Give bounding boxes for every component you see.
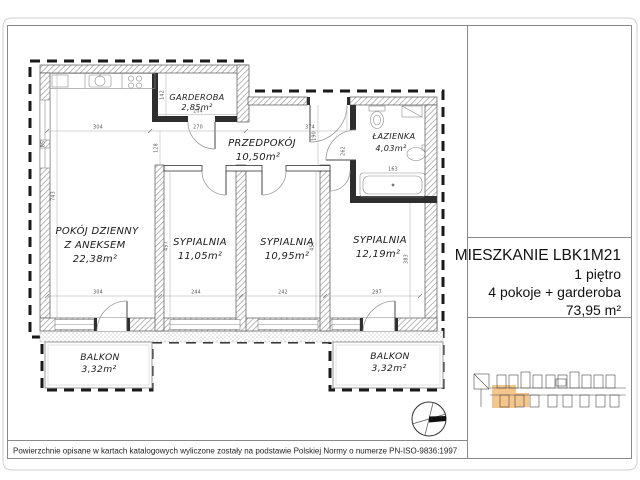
bedroom1-door — [202, 171, 226, 195]
room-label-balkon-right: BALKON 3,32m² — [370, 351, 409, 374]
room-label-balkon-left: BALKON 3,32m² — [80, 352, 119, 375]
partition-walls — [94, 73, 437, 331]
dim-syp3-w: 297 — [372, 290, 382, 296]
svg-text:BALKON: BALKON — [80, 352, 119, 363]
room-label-sypialnia-1: SYPIALNIA 11,05m² — [173, 237, 227, 262]
room-label-sypialnia-3: SYPIALNIA 12,19m² — [353, 235, 407, 260]
dim-bath-h: 262 — [341, 146, 347, 156]
bedroom3-door — [330, 171, 350, 191]
dim-passage: 128 — [154, 143, 160, 153]
dim-garderoba-h: 142 — [160, 90, 166, 100]
dim-left-wall: 743 — [51, 191, 57, 201]
svg-text:SYPIALNIA: SYPIALNIA — [260, 237, 314, 248]
svg-text:BALKON: BALKON — [370, 351, 409, 362]
dim-syp1-w: 244 — [191, 290, 201, 296]
dim-hall-h: 190 — [312, 131, 318, 141]
room-label-garderoba: GARDEROBA 2,85m² — [169, 92, 224, 112]
stove-icon — [128, 76, 141, 88]
dim-left-seg: 85 — [41, 141, 47, 148]
dim-wall-h-1: 457 — [164, 241, 170, 251]
compass-icon — [412, 402, 446, 436]
dim-tub-w: 163 — [388, 167, 398, 173]
svg-text:4,03m²: 4,03m² — [375, 143, 407, 153]
washbasin-icon — [407, 145, 425, 161]
dim-kitchen-w: 304 — [93, 125, 103, 131]
room-label-sypialnia-2: SYPIALNIA 10,95m² — [260, 237, 314, 262]
room-label-przedpokoj: PRZEDPOKÓJ 10,50m² — [228, 136, 296, 163]
svg-text:POKÓJ DZIENNY: POKÓJ DZIENNY — [56, 224, 140, 237]
hall-partition — [164, 166, 330, 172]
dim-hall-w: 374 — [305, 125, 315, 131]
dim-living-w: 304 — [93, 290, 103, 296]
toilet-icon — [369, 106, 385, 129]
svg-text:PRZEDPOKÓJ: PRZEDPOKÓJ — [228, 136, 296, 149]
bathtub-icon — [360, 173, 425, 197]
shaft-icon — [402, 106, 422, 117]
dim-syp2-w: 242 — [278, 290, 288, 296]
info-panel: MIESZKANIE LBK1M21 1 piętro 4 pokoje + g… — [455, 247, 622, 318]
kitchen-fixtures — [50, 74, 155, 89]
floor-plan-card: 304 270 374 204 142 128 190 743 85 457 4… — [0, 0, 640, 480]
footer-note: Powierzchnie opisane w kartach katalogow… — [13, 447, 458, 456]
svg-text:2,85m²: 2,85m² — [181, 102, 213, 112]
svg-text:3,32m²: 3,32m² — [82, 364, 117, 375]
svg-text:22,38m²: 22,38m² — [73, 254, 117, 265]
bedroom2-door — [262, 171, 286, 195]
apartment-floor: 1 piętro — [574, 266, 621, 282]
svg-text:Z ANEKSEM: Z ANEKSEM — [63, 240, 125, 251]
room-label-pokoj-dzienny: POKÓJ DZIENNY Z ANEKSEM 22,38m² — [56, 224, 140, 265]
svg-text:12,19m²: 12,19m² — [356, 249, 400, 260]
svg-text:3,32m²: 3,32m² — [372, 363, 407, 374]
svg-text:SYPIALNIA: SYPIALNIA — [353, 235, 407, 246]
apartment-id: MIESZKANIE LBK1M21 — [455, 247, 621, 264]
svg-text:11,05m²: 11,05m² — [178, 251, 222, 262]
balcony-slab-band — [40, 331, 443, 342]
dimension-lines — [45, 73, 422, 318]
svg-text:GARDEROBA: GARDEROBA — [169, 92, 224, 102]
sink-icon — [89, 74, 111, 87]
svg-text:10,50m²: 10,50m² — [236, 152, 280, 163]
svg-text:10,95m²: 10,95m² — [265, 251, 309, 262]
minimap-highlighted-unit — [492, 385, 516, 408]
apartment-rooms: 4 pokoje + garderoba — [488, 284, 621, 300]
floor-plan-drawing: 304 270 374 204 142 128 190 743 85 457 4… — [0, 0, 640, 480]
dim-syp3-h: 383 — [404, 254, 410, 264]
dim-opening: 270 — [193, 125, 203, 131]
svg-text:ŁAZIENKA: ŁAZIENKA — [372, 131, 416, 141]
svg-text:SYPIALNIA: SYPIALNIA — [173, 237, 227, 248]
site-minimap — [474, 372, 626, 408]
apartment-area: 73,95 m² — [566, 302, 622, 318]
